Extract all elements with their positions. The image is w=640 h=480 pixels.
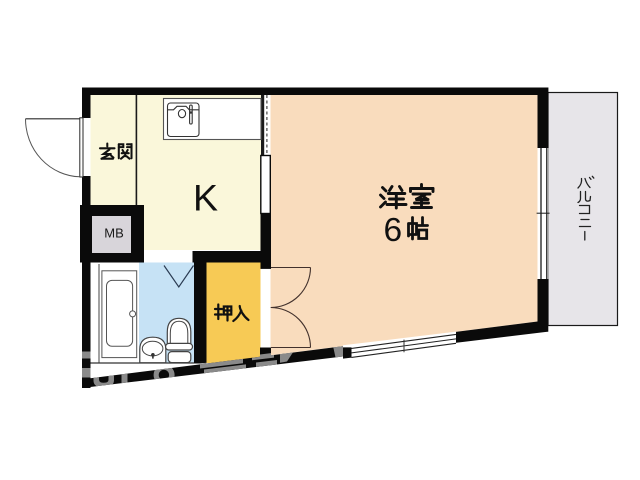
svg-text:MB: MB xyxy=(104,226,124,241)
svg-text:K: K xyxy=(193,177,218,219)
svg-text:6: 6 xyxy=(384,212,403,249)
